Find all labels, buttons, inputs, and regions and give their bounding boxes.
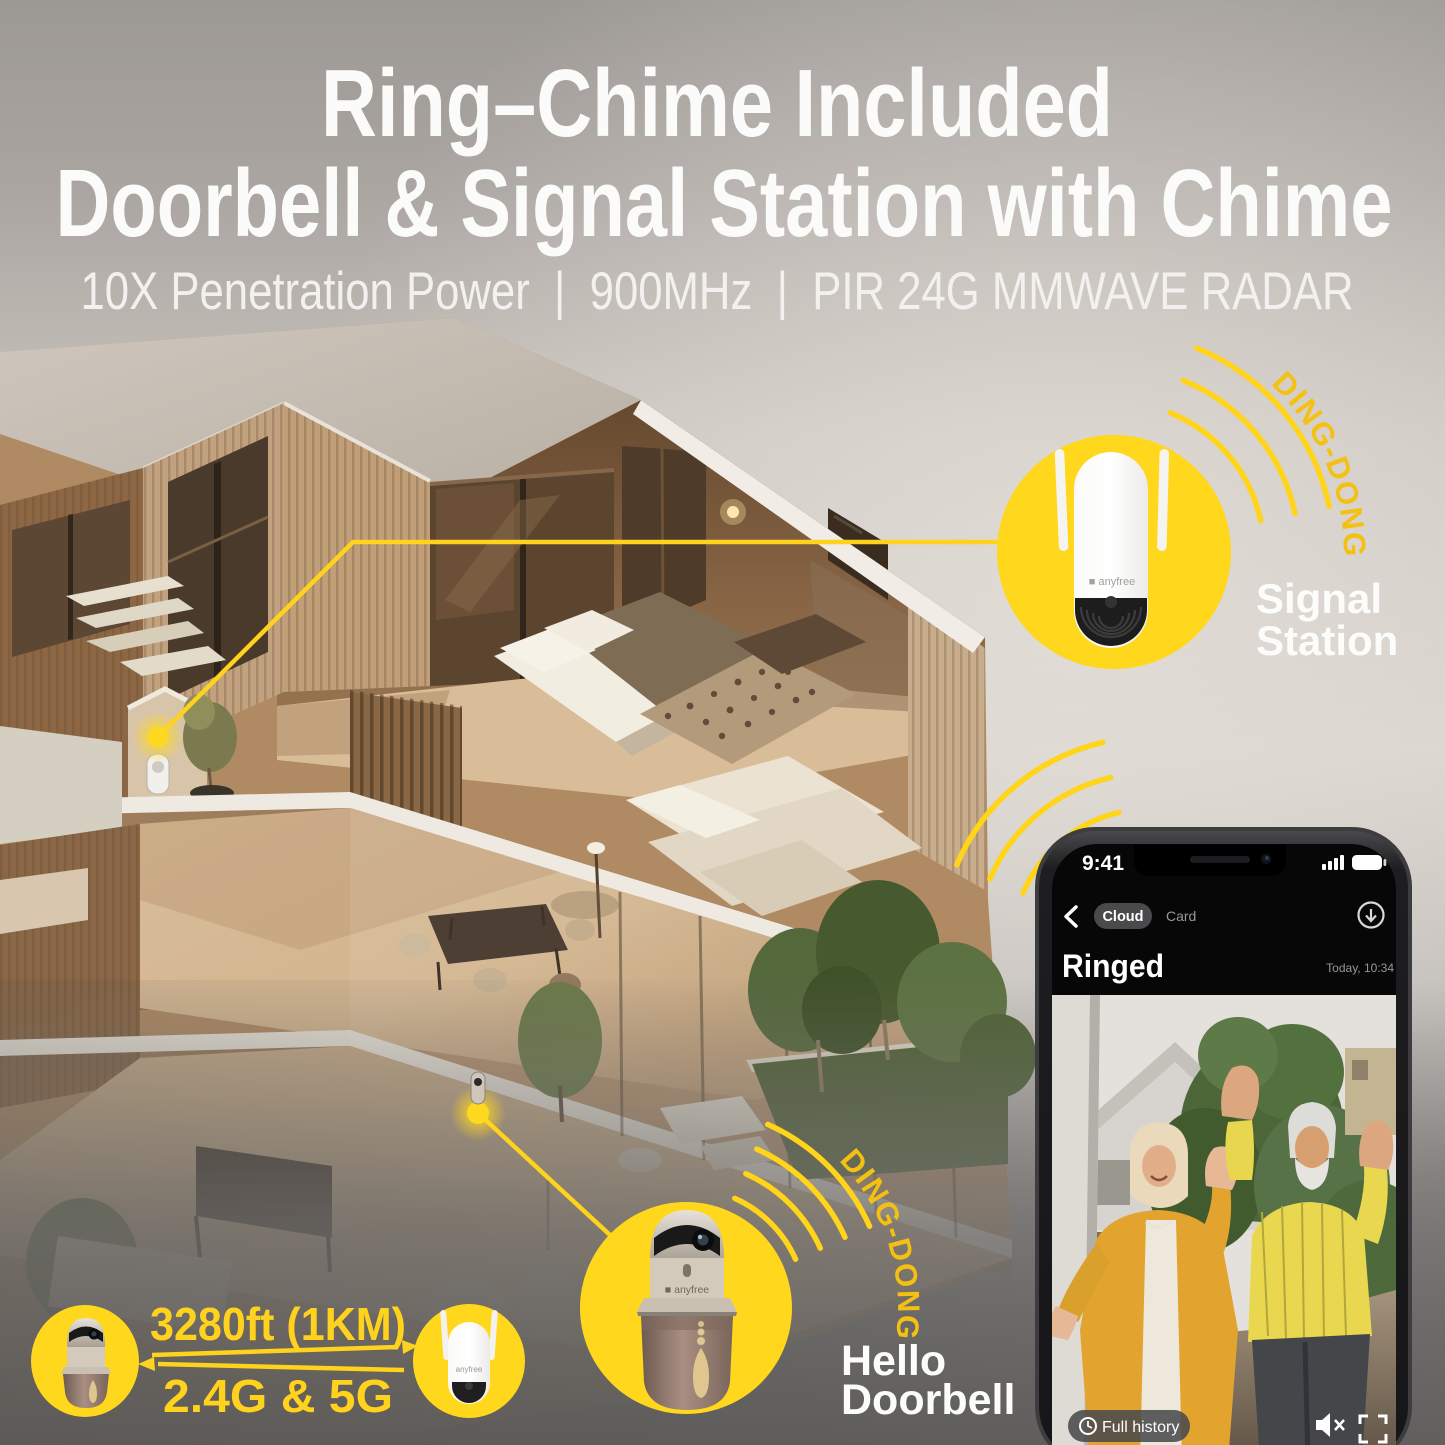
svg-text:Today, 10:34: Today, 10:34	[1326, 961, 1394, 975]
svg-text:Ringed: Ringed	[1062, 948, 1164, 984]
svg-text:10X Penetration Power | 900M: 10X Penetration Power | 900MHz | PIR 24G…	[81, 262, 1354, 321]
svg-text:Station: Station	[1256, 617, 1398, 664]
svg-text:Cloud: Cloud	[1102, 909, 1143, 925]
svg-text:Doorbell & Signal Station with: Doorbell & Signal Station with Chime	[56, 150, 1393, 257]
svg-text:Signal: Signal	[1256, 575, 1382, 622]
svg-text:9:41: 9:41	[1082, 852, 1124, 875]
svg-text:3280ft (1KM): 3280ft (1KM)	[150, 1298, 406, 1350]
svg-text:■ anyfree: ■ anyfree	[1089, 576, 1135, 588]
svg-text:anyfree: anyfree	[456, 1365, 483, 1374]
svg-text:2.4G & 5G: 2.4G & 5G	[163, 1370, 393, 1422]
svg-text:Full history: Full history	[1102, 1419, 1179, 1436]
svg-text:■ anyfree: ■ anyfree	[665, 1284, 709, 1296]
svg-text:Doorbell: Doorbell	[841, 1376, 1015, 1424]
svg-text:Ring–Chime Included: Ring–Chime Included	[321, 50, 1113, 157]
svg-text:Card: Card	[1166, 908, 1196, 924]
